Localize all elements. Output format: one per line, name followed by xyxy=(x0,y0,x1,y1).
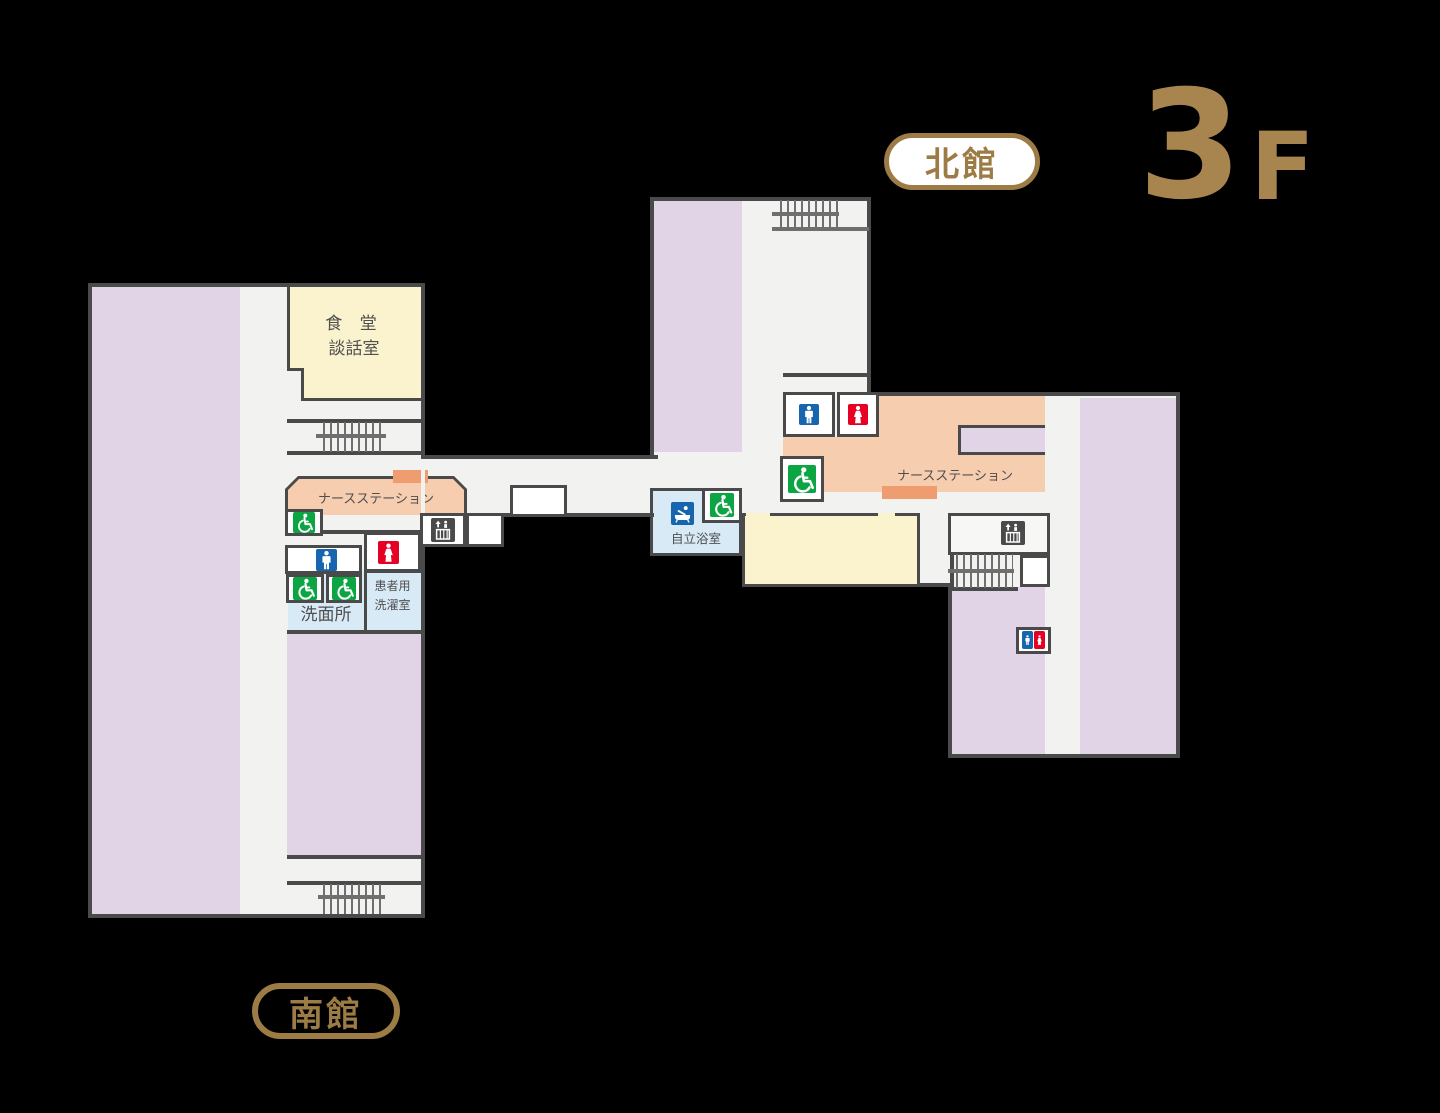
assisted-bath-label: 自立浴室 xyxy=(652,529,740,545)
wall xyxy=(918,583,952,587)
elevator-hall xyxy=(948,513,1050,555)
mens-toilet-icon xyxy=(799,404,819,425)
ward-room xyxy=(287,632,421,855)
wall xyxy=(864,392,1180,396)
elevator-icon xyxy=(1001,521,1025,545)
dining-room-label: 食 堂 談話室 xyxy=(289,308,419,360)
utility-room xyxy=(1020,555,1050,587)
stairs-handrail xyxy=(948,569,1014,573)
wall xyxy=(287,630,421,634)
stairs-glyph xyxy=(323,884,383,914)
dining-line1: 食 堂 xyxy=(325,314,382,334)
laundry-line2: 洗濯室 xyxy=(374,598,410,612)
floor-plan-canvas: 食 堂 談話室 ナースステーション ナースステーション 洗面所 患者用 洗濯室 … xyxy=(0,0,1440,1113)
ward-room-notch xyxy=(958,425,1045,455)
stairs-handrail xyxy=(318,895,385,899)
wheelchair-icon xyxy=(293,512,315,533)
laundry-line1: 患者用 xyxy=(374,579,410,593)
womens-toilet-icon xyxy=(378,541,399,564)
ward-room xyxy=(1080,398,1176,587)
ward-room xyxy=(654,201,742,452)
floor-indicator: 3 F xyxy=(1138,86,1315,210)
floor-number: 3 xyxy=(1138,83,1242,211)
door-gap xyxy=(746,513,770,516)
wheelchair-icon xyxy=(710,493,734,517)
north-building-label: 北館 xyxy=(925,137,999,186)
elevator-icon xyxy=(431,518,455,542)
ward-room xyxy=(952,587,1045,758)
south-building-label: 南館 xyxy=(289,987,363,1036)
nurse-counter xyxy=(882,486,937,499)
utility-room xyxy=(466,513,504,547)
ward-room xyxy=(1080,587,1176,758)
wheelchair-icon xyxy=(332,577,356,600)
floor-suffix: F xyxy=(1250,128,1314,208)
womens-toilet-icon xyxy=(848,404,868,425)
ward-room xyxy=(92,287,240,914)
corridor-opening xyxy=(421,459,425,513)
womens-toilet-icon xyxy=(1034,631,1045,649)
dining-line2: 談話室 xyxy=(329,339,380,359)
wall xyxy=(948,754,1180,758)
bath-icon xyxy=(671,502,694,525)
stairs-handrail xyxy=(772,227,869,231)
corridor-room xyxy=(510,485,567,517)
dining-room-entry-notch xyxy=(287,368,304,401)
south-building-badge: 南館 xyxy=(252,983,400,1039)
north-lower-corridor xyxy=(1045,587,1080,758)
stairs-handrail xyxy=(316,434,386,438)
washroom-label: 洗面所 xyxy=(288,601,364,623)
wall xyxy=(1176,392,1180,758)
patient-laundry-label: 患者用 洗濯室 xyxy=(364,576,421,616)
mens-toilet-icon xyxy=(316,549,337,571)
common-room xyxy=(742,513,920,587)
wall xyxy=(287,855,421,859)
stairs-handrail xyxy=(772,212,839,216)
wall xyxy=(783,373,871,377)
nurse-station-north-label: ナースステーション xyxy=(870,466,1040,482)
north-building-badge: 北館 xyxy=(884,133,1040,190)
wall xyxy=(948,587,952,758)
wheelchair-icon xyxy=(293,577,317,600)
wall xyxy=(421,455,658,459)
wheelchair-icon xyxy=(788,465,816,493)
mens-toilet-icon xyxy=(1022,631,1033,649)
door-gap xyxy=(878,513,895,516)
